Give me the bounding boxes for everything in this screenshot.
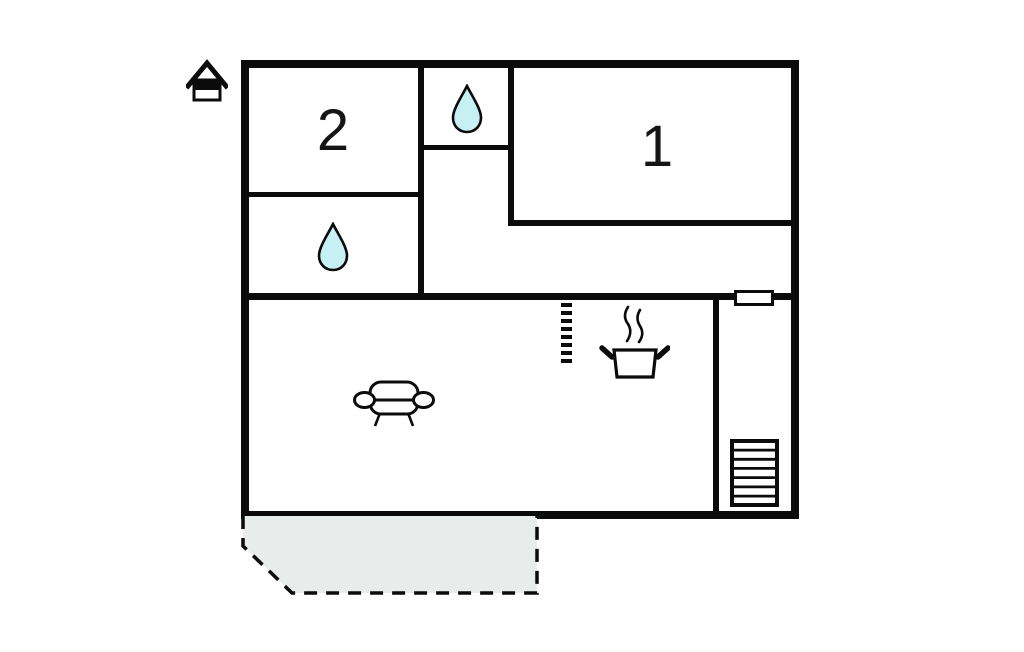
terrace-area	[239, 515, 545, 599]
room1-label: 1	[617, 118, 697, 176]
window-marker	[734, 290, 774, 306]
stairs-icon	[729, 438, 780, 508]
room-divider-dashed	[561, 303, 572, 363]
wall-room2-right	[418, 68, 424, 300]
cooking-pot-icon	[598, 304, 670, 382]
wall-room1-left	[508, 68, 514, 226]
wall-bathroom-small-bottom	[418, 145, 514, 150]
house-icon	[186, 59, 228, 103]
wall-stairs-left	[713, 300, 719, 511]
wall-hall-living	[249, 293, 791, 300]
water-drop-icon	[450, 84, 484, 134]
room2-label: 2	[293, 102, 373, 160]
sofa-icon	[353, 377, 435, 429]
wall-room2-bottom	[249, 192, 418, 197]
floorplan-canvas: 1 2	[0, 0, 1024, 652]
water-drop-icon	[316, 222, 350, 272]
wall-room1-bottom	[508, 220, 791, 226]
